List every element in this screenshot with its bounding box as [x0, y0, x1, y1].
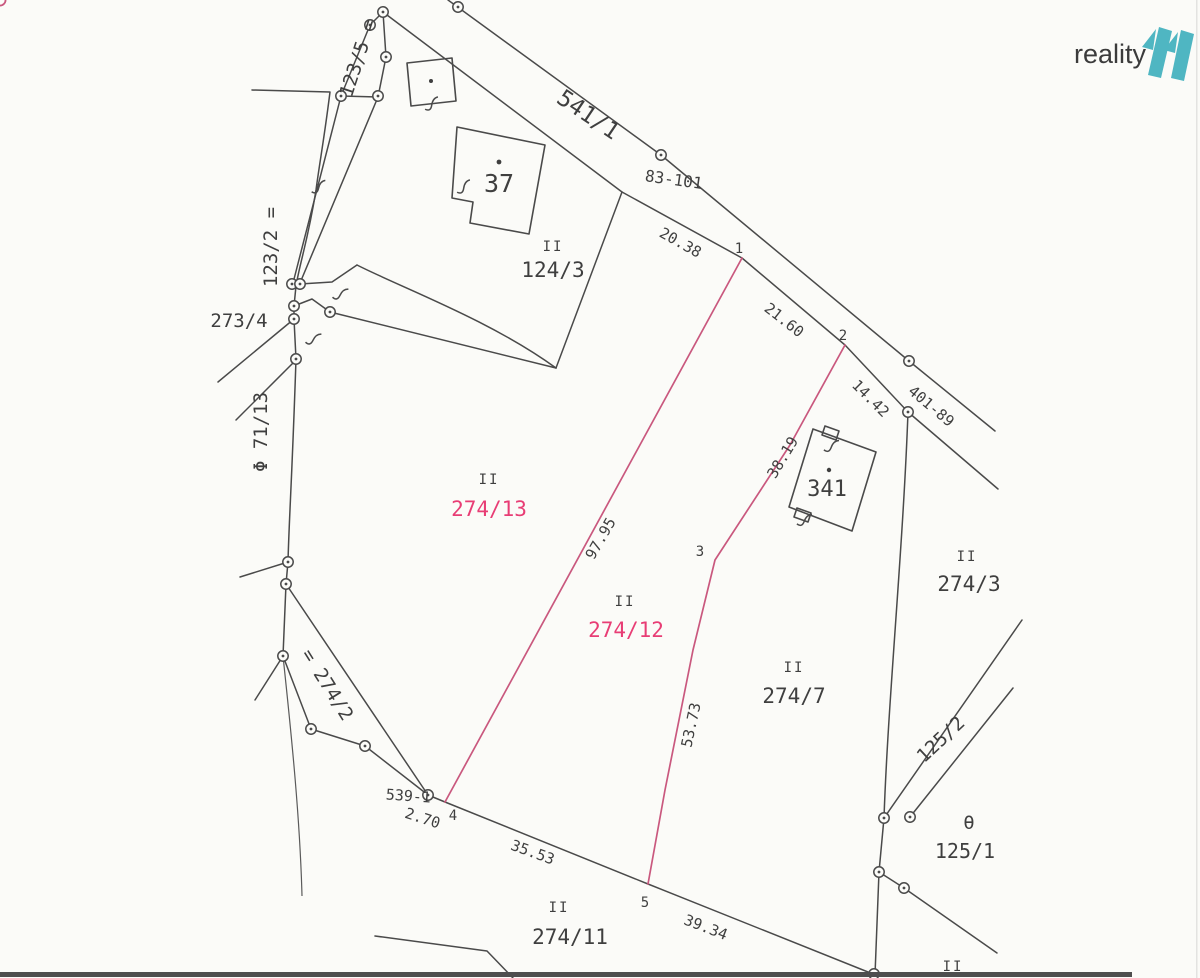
logo-wordmark: reality — [1074, 39, 1147, 69]
measurement-38-19: 38.19 — [763, 433, 802, 481]
west-boundary-chain — [283, 286, 296, 656]
junction-zigzag-line — [300, 265, 357, 284]
southwest-fading-line — [283, 656, 302, 896]
parcel-label-274-11: 274/11 — [532, 925, 608, 949]
parcel-symbol-274-3: II — [957, 549, 978, 565]
parcel-label-274-7: 274/7 — [762, 684, 825, 708]
parcel-label-71-13: Φ 71/13 — [250, 392, 272, 472]
measurement-39-34: 39.34 — [681, 911, 730, 944]
parcel-label-274-3: 274/3 — [937, 572, 1000, 596]
small-building-dot — [429, 79, 433, 83]
parcel-label-274-13: 274/13 — [451, 497, 527, 521]
measurement-21-60: 21.60 — [761, 299, 808, 341]
highlight-point-5-marker — [0, 0, 6, 6]
hook-symbol — [332, 285, 348, 303]
survey-point — [289, 301, 299, 311]
hook-symbol — [312, 178, 326, 194]
measurement-20-38: 20.38 — [656, 224, 704, 262]
spur-line-southwest — [255, 656, 283, 700]
building-341-dot — [827, 468, 831, 472]
parcel-label-274-2: = 274/2 — [297, 645, 358, 725]
survey-point — [360, 741, 370, 751]
measurement-97-95: 97.95 — [582, 514, 620, 562]
logo-11-icon — [1142, 27, 1194, 81]
parcel-symbol-124-3: II — [543, 239, 564, 255]
parcel-symbol-274-12: II — [615, 594, 636, 610]
survey-point — [904, 356, 914, 366]
bottom-left-boundary-line — [375, 936, 513, 978]
survey-point — [283, 557, 293, 567]
highlight-boundary-2-3-5 — [648, 345, 845, 884]
parcel-symbol-274-13: II — [479, 472, 500, 488]
parcel-label-274-12: 274/12 — [588, 618, 664, 642]
survey-point — [378, 7, 388, 17]
measurement-14-42: 14.42 — [848, 376, 893, 421]
survey-mark-label-401-89: 401-89 — [905, 382, 958, 431]
building-label-341: 341 — [807, 477, 847, 502]
survey-point — [905, 812, 915, 822]
parcel-label-123-2: 123/2 = — [260, 207, 282, 287]
building-37-dot — [497, 160, 502, 165]
survey-point — [903, 407, 913, 417]
survey-point — [453, 2, 463, 12]
survey-point — [291, 354, 301, 364]
survey-point — [656, 150, 666, 160]
parcel-274-2-upper-line — [286, 584, 428, 795]
survey-point — [874, 867, 884, 877]
parcel-symbol-274-7: II — [784, 660, 805, 676]
hook-symbol — [457, 178, 470, 194]
survey-point — [381, 52, 391, 62]
strip-123-2-right-line — [300, 97, 378, 283]
building-label-37: 37 — [484, 169, 514, 198]
east-chain-line — [875, 818, 884, 975]
cadastral-map: 123/5 = 123/2 = 273/4 Φ 71/13 = 274/2 12… — [0, 0, 1200, 978]
parcel-274-2-lower-line — [283, 656, 428, 795]
survey-point — [373, 91, 383, 101]
boundary-point-label-3: 3 — [696, 544, 704, 560]
survey-point — [325, 307, 335, 317]
parcel-label-125-1: 125/1 — [935, 839, 995, 863]
measurement-2-70: 2.70 — [403, 804, 443, 832]
survey-point — [289, 314, 299, 324]
scan-right-edge — [1196, 0, 1198, 978]
reality11-logo: reality — [1074, 27, 1194, 81]
survey-point — [306, 724, 316, 734]
south-boundary-line — [428, 795, 873, 974]
survey-point — [281, 579, 291, 589]
parcel-label-124-3: 124/3 — [521, 258, 584, 282]
parcel-label-541-1: 541/1 — [552, 85, 624, 145]
southeast-boundary-line — [904, 888, 997, 953]
boundary-point-label-4: 4 — [449, 808, 457, 824]
parcel-symbol-125-1: θ — [963, 812, 974, 834]
boundary-point-label-2: 2 — [839, 328, 847, 344]
survey-point — [899, 883, 909, 893]
east-branch-boundary-line — [884, 412, 908, 818]
survey-point — [278, 651, 288, 661]
parcel-label-123-5: 123/5 = — [335, 17, 381, 100]
survey-point — [879, 813, 889, 823]
strip-123-2-left-line — [293, 96, 341, 283]
survey-point — [295, 279, 305, 289]
scan-bottom-edge — [0, 972, 1132, 977]
parcel-label-273-4: 273/4 — [210, 310, 267, 332]
parcel-label-125-2: 125/2 — [912, 712, 969, 767]
survey-mark-label-83-101: 83-101 — [644, 166, 704, 193]
hook-symbol — [305, 330, 321, 348]
boundary-point-label-1: 1 — [735, 241, 743, 257]
spur-line-west — [240, 562, 288, 577]
measurement-35-53: 35.53 — [508, 836, 557, 868]
road-upper-boundary-line — [448, 0, 995, 431]
scanned-cadastral-map-page: 123/5 = 123/2 = 273/4 Φ 71/13 = 274/2 12… — [0, 0, 1200, 978]
boundary-point-label-5: 5 — [641, 895, 649, 911]
parcel-symbol-274-11: II — [549, 900, 570, 916]
